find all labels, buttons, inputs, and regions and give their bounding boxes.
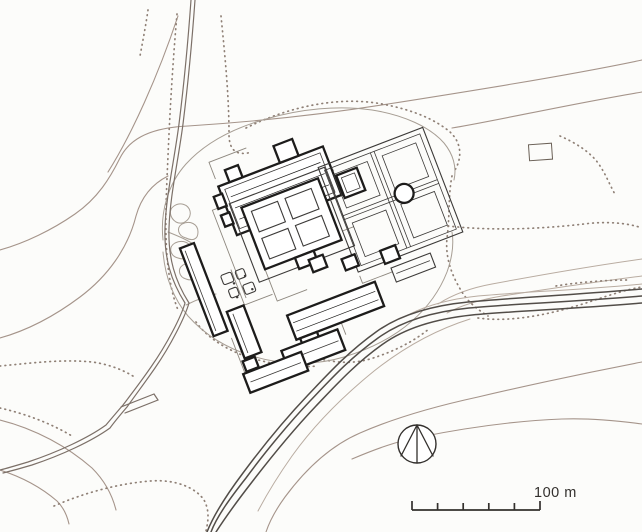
pond xyxy=(392,181,417,206)
dotted-line xyxy=(166,14,178,310)
scale-label: 100 m xyxy=(534,485,577,501)
small-square-building xyxy=(380,245,400,264)
north-arrow-icon xyxy=(398,425,436,463)
dotted-line xyxy=(221,16,252,153)
tree-blob xyxy=(170,204,190,223)
chorten-dot xyxy=(251,288,254,291)
tree-blob xyxy=(179,222,198,239)
monastery-complex xyxy=(155,86,489,397)
dotted-line xyxy=(478,287,642,319)
west-wing xyxy=(180,243,228,336)
contour-line xyxy=(0,470,69,524)
contour-line xyxy=(352,419,642,459)
dotted-line xyxy=(0,361,136,378)
dotted-line xyxy=(448,223,642,229)
west-wing-building xyxy=(180,243,228,336)
river-line xyxy=(216,303,642,532)
enclosure-wall xyxy=(360,264,393,283)
dotted-line xyxy=(140,10,148,56)
garden-plot xyxy=(382,143,429,190)
chorten-dot xyxy=(232,282,235,285)
terrain-contours xyxy=(0,16,642,532)
contour-line xyxy=(452,92,642,128)
scale-bar: 100 m xyxy=(412,485,577,510)
vegetation-dotted-lines xyxy=(0,10,642,531)
site-plan-drawing: 100 m xyxy=(0,0,642,532)
hill-road xyxy=(0,0,195,473)
contour-line xyxy=(0,176,168,338)
road-line xyxy=(3,0,195,473)
dotted-line xyxy=(54,481,208,531)
dotted-line xyxy=(560,136,616,196)
small-structures xyxy=(220,266,256,301)
outlying-structure xyxy=(528,143,552,161)
site-plan-page: 100 m xyxy=(0,0,642,532)
